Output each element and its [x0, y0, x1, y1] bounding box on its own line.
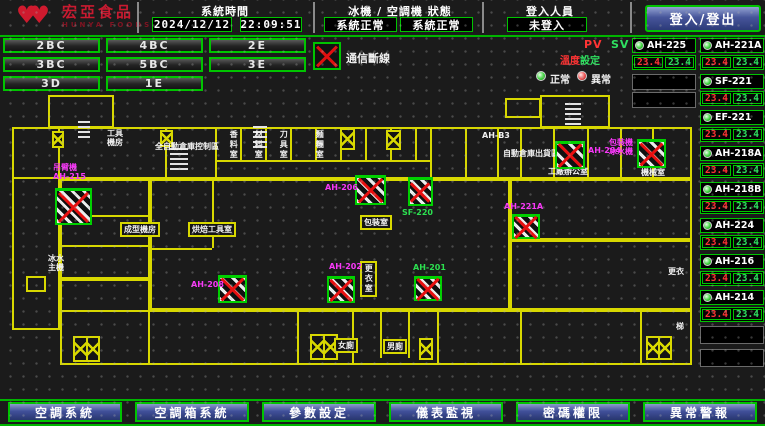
unit-name-label: AH-214 — [715, 292, 754, 303]
room-label-烘焙工具室: 烘焙工具室 — [188, 222, 236, 237]
equipment-offline-CH-1[interactable] — [637, 139, 666, 168]
unit-values-AH-218A: 23.423.4 — [700, 163, 764, 178]
status-led-icon — [703, 257, 712, 266]
nav-button-參數設定[interactable]: 參數設定 — [262, 402, 376, 422]
unit-empty-slot — [700, 326, 764, 344]
ahu-status-value: 系統正常 — [400, 17, 473, 32]
stairs-x-cell — [658, 338, 670, 358]
floor-button-1E[interactable]: 1E — [106, 76, 203, 91]
unit-values-AH-214: 23.423.4 — [700, 307, 764, 322]
stairs-icon — [73, 336, 100, 362]
unit-name-label: SF-221 — [715, 76, 752, 87]
plan-wall-line — [297, 310, 299, 365]
pv-label: PV — [584, 38, 603, 51]
sv-value: 23.4 — [733, 237, 762, 248]
unit-AH-221A[interactable]: AH-221A — [700, 38, 764, 53]
plan-wall-line — [60, 245, 150, 247]
unit-name-label: AH-216 — [715, 256, 754, 267]
header-divider — [137, 2, 139, 33]
status-led-icon — [635, 41, 644, 50]
login-logout-button[interactable]: 登入/登出 — [645, 5, 761, 32]
unit-values-EF-221: 23.423.4 — [700, 127, 764, 142]
stair-glyph-icon — [565, 103, 581, 125]
pv-value: 23.4 — [702, 93, 731, 104]
unit-AH-214[interactable]: AH-214 — [700, 290, 764, 305]
unit-empty-slot — [700, 349, 764, 367]
floor-button-3BC[interactable]: 3BC — [3, 57, 100, 72]
sv-value: 23.4 — [733, 309, 762, 320]
unit-AH-224[interactable]: AH-224 — [700, 218, 764, 233]
unit-AH-218A[interactable]: AH-218A — [700, 146, 764, 161]
stairs-x-cell — [421, 340, 431, 358]
sv-value: 23.4 — [733, 93, 762, 104]
room-label-刀具室: 刀具室 — [279, 130, 288, 160]
header-divider — [482, 2, 484, 33]
header: ♥♥ 宏亞食品 HUNYA FOODS 系統時間 2024/12/12 22:0… — [0, 0, 765, 36]
plan-wall-line — [437, 310, 439, 365]
unit-name-label: EF-221 — [715, 112, 751, 123]
unit-empty-slot — [632, 92, 696, 108]
header-separator-line — [0, 35, 765, 37]
sv-value: 23.4 — [665, 57, 694, 68]
floor-button-2E[interactable]: 2E — [209, 38, 306, 53]
room-label-自動倉庫出貨區: 自動倉庫出貨區 — [503, 149, 559, 158]
equipment-label-AH-215: 吊臂機 AH-215 — [53, 163, 86, 181]
stairs-icon — [340, 128, 355, 150]
status-led-icon — [703, 293, 712, 302]
system-date-value: 2024/12/12 — [152, 17, 232, 32]
stairs-icon — [386, 130, 401, 150]
unit-AH-225[interactable]: AH-225 — [632, 38, 696, 53]
normal-label: 正常 — [550, 71, 570, 86]
plan-wall — [505, 98, 541, 118]
set-label: 設定 — [580, 56, 600, 67]
sv-label: SV — [611, 38, 629, 51]
stairs-icon — [419, 338, 433, 360]
room-label-更衣室: 更衣室 — [360, 261, 377, 297]
room-label-更衣: 更衣 — [668, 267, 684, 276]
logo-hearts-icon: ♥♥ — [16, 3, 41, 27]
room-label-全自動倉庫控制區: 全自動倉庫控制區 — [155, 142, 219, 151]
equipment-offline-AH-221A[interactable] — [512, 214, 540, 239]
stair-glyph-icon — [78, 118, 90, 138]
room-label-女廁: 女廁 — [334, 338, 358, 353]
equipment-offline-SF-220[interactable] — [408, 177, 433, 206]
unit-values-AH-221A: 23.423.4 — [700, 55, 764, 70]
unit-EF-221[interactable]: EF-221 — [700, 110, 764, 125]
equipment-label-AH-201: AH-201 — [413, 263, 446, 272]
pv-value: 23.4 — [702, 273, 731, 284]
stairs-icon — [646, 336, 672, 360]
unit-values-AH-224: 23.423.4 — [700, 235, 764, 250]
temp-label: 溫度 — [560, 56, 580, 67]
room-label-成型機房: 成型機房 — [120, 222, 160, 237]
unit-values-SF-221: 23.423.4 — [700, 91, 764, 106]
stairs-x-cell — [388, 132, 399, 148]
sv-value: 23.4 — [733, 273, 762, 284]
equipment-offline-AH-202[interactable] — [327, 276, 355, 303]
floor-button-2BC[interactable]: 2BC — [3, 38, 100, 53]
abnormal-led-icon — [577, 71, 587, 81]
comm-loss-icon — [313, 42, 341, 70]
status-led-icon — [703, 221, 712, 230]
plan-wall-line — [430, 127, 432, 179]
status-led-icon — [703, 185, 712, 194]
room-label-包裝室: 包裝室 — [360, 215, 392, 230]
plan-wall-line — [290, 127, 292, 160]
sv-value: 23.4 — [733, 57, 762, 68]
plan-wall-line — [150, 248, 212, 250]
room-label-工具機房: 工具 機房 — [107, 129, 123, 147]
equipment-label-AH-202: AH-202 — [329, 262, 362, 271]
hmi-screen: ♥♥ 宏亞食品 HUNYA FOODS 系統時間 2024/12/12 22:0… — [0, 0, 765, 426]
pv-value: 23.4 — [702, 309, 731, 320]
room-label-男廁: 男廁 — [383, 339, 407, 354]
plan-wall-line — [415, 127, 417, 160]
unit-values-AH-216: 23.423.4 — [700, 271, 764, 286]
plan-wall-line — [465, 127, 467, 179]
nav-button-空調系統[interactable]: 空調系統 — [8, 402, 122, 422]
unit-values-AH-225: 23.423.4 — [632, 55, 696, 70]
nav-button-異常警報[interactable]: 異常警報 — [643, 402, 757, 422]
stairs-icon — [52, 131, 64, 148]
plan-wall-line — [215, 160, 430, 162]
header-divider — [313, 2, 315, 33]
footer-separator-line — [0, 399, 765, 401]
unit-SF-221[interactable]: SF-221 — [700, 74, 764, 89]
temp-setpoint-label: 溫度設定 — [560, 52, 600, 67]
equipment-label-AH-221A: AH-221A — [504, 202, 543, 211]
nav-button-儀表監視[interactable]: 儀表監視 — [389, 402, 503, 422]
stairs-x-cell — [312, 336, 323, 358]
nav-button-空調箱系統[interactable]: 空調箱系統 — [135, 402, 249, 422]
plan-wall — [26, 276, 46, 292]
unit-values-AH-218B: 23.423.4 — [700, 199, 764, 214]
nav-button-密碼權限[interactable]: 密碼權限 — [516, 402, 630, 422]
stairs-x-cell — [86, 338, 99, 360]
plan-wall — [60, 310, 692, 365]
equipment-offline-AH-201[interactable] — [414, 276, 442, 301]
plan-wall-line — [212, 179, 214, 248]
plan-wall-line — [365, 127, 367, 160]
abnormal-label: 異常 — [591, 71, 611, 86]
sv-value: 23.4 — [733, 165, 762, 176]
equipment-label-CH-1: 包裝機 冰水機 — [609, 138, 633, 156]
header-divider — [630, 2, 632, 33]
status-led-icon — [703, 41, 712, 50]
stairs-x-cell — [75, 338, 86, 360]
sv-value: 23.4 — [733, 129, 762, 140]
login-user-value: 未登入 — [507, 17, 587, 32]
room-label-梯: 梯 — [676, 322, 684, 331]
equipment-label-AH-208: AH-208 — [191, 280, 224, 289]
unit-name-label: AH-221A — [715, 40, 761, 51]
room-label-冰水主機: 冰水 主機 — [48, 254, 64, 272]
equipment-offline-AH-204[interactable] — [555, 141, 585, 169]
plan-wall-line — [640, 310, 642, 365]
plan-wall-line — [408, 310, 410, 358]
normal-led-icon — [536, 71, 546, 81]
pv-value: 23.4 — [702, 129, 731, 140]
pv-value: 23.4 — [702, 237, 731, 248]
unit-name-label: AH-218A — [715, 148, 761, 159]
stairs-x-cell — [54, 133, 62, 146]
room-label-AH-B3: AH-B3 — [482, 131, 510, 140]
floor-button-3E[interactable]: 3E — [209, 57, 306, 72]
plan-wall — [510, 240, 692, 310]
room-label-材料室: 材料室 — [254, 130, 263, 160]
plan-wall-line — [215, 127, 217, 179]
equipment-label-SF-220: SF-220 — [402, 208, 433, 217]
stairs-x-cell — [342, 130, 353, 148]
unit-AH-216[interactable]: AH-216 — [700, 254, 764, 269]
sv-value: 23.4 — [733, 201, 762, 212]
pv-value: 23.4 — [702, 201, 731, 212]
plan-wall-line — [240, 127, 242, 160]
plan-wall-line — [380, 310, 382, 358]
pv-value: 23.4 — [702, 165, 731, 176]
room-label-香料室: 香料室 — [229, 130, 238, 160]
unit-name-label: AH-225 — [647, 40, 686, 51]
stairs-x-cell — [648, 338, 658, 358]
plan-wall-line — [520, 310, 522, 365]
floor-button-5BC[interactable]: 5BC — [106, 57, 203, 72]
status-led-icon — [703, 149, 712, 158]
plan-wall — [12, 127, 60, 330]
equipment-label-AH-206: AH-206 — [325, 183, 358, 192]
pv-value: 23.4 — [702, 57, 731, 68]
unit-AH-218B[interactable]: AH-218B — [700, 182, 764, 197]
system-time-value: 22:09:51 — [240, 17, 302, 32]
pv-value: 23.4 — [634, 57, 663, 68]
equipment-offline-AH-215[interactable] — [55, 188, 92, 225]
status-led-icon — [703, 77, 712, 86]
unit-name-label: AH-218B — [715, 184, 761, 195]
room-label-麵糰室: 麵糰室 — [315, 130, 324, 160]
unit-empty-slot — [632, 74, 696, 90]
chiller-status-value: 系統正常 — [324, 17, 397, 32]
room-label-機械室: 機械室 — [641, 168, 665, 177]
floor-button-4BC[interactable]: 4BC — [106, 38, 203, 53]
unit-name-label: AH-224 — [715, 220, 754, 231]
comm-loss-label: 通信斷線 — [346, 50, 390, 66]
floor-button-3D[interactable]: 3D — [3, 76, 100, 91]
status-led-icon — [703, 113, 712, 122]
equipment-offline-AH-206[interactable] — [355, 175, 386, 205]
